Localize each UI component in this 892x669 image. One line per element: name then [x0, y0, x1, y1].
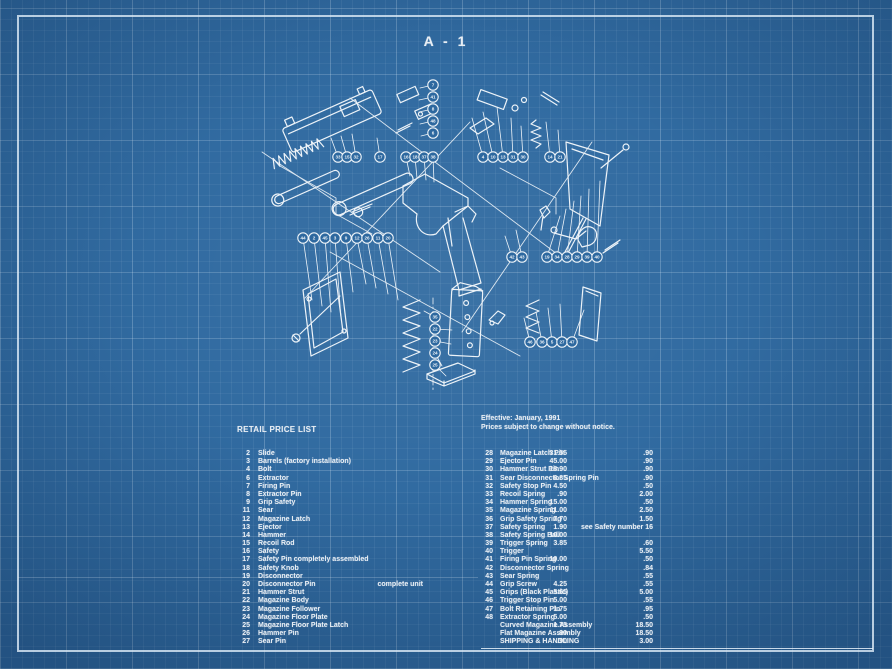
- price-row: 30Hammer Strut Pin.90: [481, 466, 653, 474]
- part-number: [481, 622, 493, 630]
- part-name: Sear Pin: [258, 638, 286, 646]
- part-number: 30: [481, 466, 493, 474]
- balloon-leader-line: [335, 238, 341, 318]
- part-number: 6: [237, 475, 250, 483]
- part-number: 32: [481, 483, 493, 491]
- frame-part: [403, 174, 481, 296]
- part-balloon-number: 17: [377, 155, 383, 160]
- blueprint-page: { "title": "A - 1", "left_list": { "head…: [0, 0, 892, 669]
- part-price: 1.50: [615, 516, 653, 524]
- price-row: 43Sear Spring.55: [481, 573, 653, 581]
- price-row: 42Disconnector Spring.84: [481, 565, 653, 573]
- part-balloon-number: 43: [519, 255, 525, 260]
- balloon-leader-line: [303, 238, 312, 300]
- part-number: 22: [237, 597, 250, 605]
- part-number: 33: [481, 491, 493, 499]
- part-balloon-number: 27: [559, 340, 565, 345]
- part-name: Sear Spring: [500, 573, 539, 581]
- price-row: 41Firing Pin Spring.50: [481, 556, 653, 564]
- part-balloon-number: 33: [335, 155, 341, 160]
- balloon-leader-line: [577, 196, 581, 257]
- part-balloon-number: 44: [300, 236, 306, 241]
- part-balloon-number: 15: [344, 155, 350, 160]
- part-balloon-number: 2: [313, 236, 316, 241]
- part-name: Magazine Latch Pin: [500, 450, 565, 458]
- part-number: 28: [481, 450, 493, 458]
- part-number: 46: [481, 597, 493, 605]
- part-balloon-number: 16: [403, 155, 409, 160]
- part-price: .90: [615, 475, 653, 483]
- part-number: 25: [237, 622, 250, 630]
- balloon-leader-line: [597, 181, 600, 257]
- part-balloon-number: 10: [490, 155, 496, 160]
- part-number: 2: [237, 450, 250, 458]
- price-row: 36Grip Safety Spring1.50: [481, 516, 653, 524]
- part-price: 2.50: [615, 507, 653, 515]
- part-balloon-number: 21: [557, 155, 563, 160]
- part-name: SHIPPING & HANDLING: [500, 638, 579, 646]
- part-balloon-number: 19: [544, 255, 550, 260]
- part-number: 23: [237, 606, 250, 614]
- part-price: 18.50: [615, 622, 653, 630]
- part-balloon-number: 42: [509, 255, 515, 260]
- part-name: Firing Pin: [258, 483, 290, 491]
- part-name: Recoil Spring: [500, 491, 545, 499]
- part-balloon-number: 11: [376, 236, 381, 241]
- part-balloon-number: 34: [554, 255, 560, 260]
- price-row: 48Extractor Spring.50: [481, 614, 653, 622]
- part-balloon-number: 30: [520, 155, 526, 160]
- part-name: Ejector: [258, 524, 282, 532]
- part-number: 24: [237, 614, 250, 622]
- price-row: 46Trigger Stop Pin.55: [481, 597, 653, 605]
- part-balloon-number: 9: [345, 236, 348, 241]
- part-balloon-number: 13: [500, 155, 506, 160]
- part-name: Magazine Latch: [258, 516, 310, 524]
- balloon-leader-line: [367, 238, 376, 288]
- part-balloon-number: 41: [430, 95, 436, 100]
- part-balloon-number: 46: [527, 340, 533, 345]
- part-number: 44: [481, 581, 493, 589]
- balloon-leader-line: [378, 238, 388, 294]
- price-list-right-column: Effective: January, 1991 Prices subject …: [481, 414, 653, 647]
- part-name: Safety Spring Ball: [500, 532, 560, 540]
- part-name: Bolt Retaining Pin: [500, 606, 560, 614]
- part-balloon-number: 35: [432, 315, 438, 320]
- magazine-latch-part: [489, 311, 505, 325]
- part-number: 18: [237, 565, 250, 573]
- price-row: SHIPPING & HANDLING3.00: [481, 638, 653, 646]
- part-price: .50: [615, 556, 653, 564]
- part-number: 4: [237, 466, 250, 474]
- part-price: .55: [615, 573, 653, 581]
- part-balloon-number: 32: [353, 155, 359, 160]
- part-name: Slide: [258, 450, 275, 458]
- part-name: Firing Pin Spring: [500, 556, 556, 564]
- part-balloon-number: 14: [547, 155, 553, 160]
- part-balloon-number: 12: [354, 236, 360, 241]
- barrel-part: [330, 170, 419, 226]
- price-row: 38Safety Spring Ball: [481, 532, 653, 540]
- part-balloon-number: 36: [539, 340, 545, 345]
- part-name: Safety Knob: [258, 565, 299, 573]
- part-name: Disconnector Pin: [258, 581, 316, 589]
- part-balloon-number: 37: [421, 155, 427, 160]
- part-balloon-number: 23: [432, 339, 438, 344]
- part-balloon-number: 20: [385, 236, 391, 241]
- balloon-leader-line: [497, 107, 503, 157]
- part-number: 13: [237, 524, 250, 532]
- part-balloon-number: 7: [432, 83, 435, 88]
- part-name: Extractor: [258, 475, 289, 483]
- balloon-leader-line: [587, 189, 589, 257]
- part-name: Bolt: [258, 466, 272, 474]
- hammer-sear-parts: [350, 204, 620, 253]
- part-price: .50: [615, 614, 653, 622]
- part-price: .55: [615, 597, 653, 605]
- part-balloon-number: 48: [430, 119, 436, 124]
- part-name: Grip Safety Spring: [500, 516, 561, 524]
- part-balloon-number: 5: [551, 340, 554, 345]
- part-number: 12: [237, 516, 250, 524]
- part-balloon-number: 45: [322, 236, 328, 241]
- price-row: 44Grip Screw.55: [481, 581, 653, 589]
- effective-date-line: Effective: January, 1991: [481, 414, 653, 423]
- part-balloon-number: 39: [584, 255, 590, 260]
- part-name: Extractor Pin: [258, 491, 302, 499]
- part-number: 36: [481, 516, 493, 524]
- price-row: 32Safety Stop Pin.50: [481, 483, 653, 491]
- part-price: .84: [615, 565, 653, 573]
- part-balloon-number: 25: [432, 363, 438, 368]
- part-number: 37: [481, 524, 493, 532]
- part-balloon-number: 47: [569, 340, 575, 345]
- price-note: see Safety number 16: [581, 524, 653, 532]
- part-number: [481, 638, 493, 646]
- price-row: 47Bolt Retaining Pin.95: [481, 606, 653, 614]
- part-number: 43: [481, 573, 493, 581]
- balloon-leader-line: [483, 112, 493, 157]
- part-number: 41: [481, 556, 493, 564]
- part-price: [615, 532, 653, 540]
- part-price: .50: [615, 483, 653, 491]
- part-name: Sear Disconnector Spring Pin: [500, 475, 599, 483]
- balloon-leader-line: [314, 238, 322, 306]
- part-balloon-number: 22: [432, 327, 438, 332]
- part-balloon-number: 28: [564, 255, 570, 260]
- part-number: 27: [237, 638, 250, 646]
- part-number: 48: [481, 614, 493, 622]
- part-price: .90: [615, 466, 653, 474]
- part-price: .55: [615, 581, 653, 589]
- part-number: 11: [237, 507, 250, 515]
- part-number: [481, 630, 493, 638]
- part-price: .90: [615, 450, 653, 458]
- magazine-spring-part: [403, 300, 420, 372]
- balloon-leader-line: [357, 238, 366, 284]
- part-number: 31: [481, 475, 493, 483]
- part-number: 17: [237, 556, 250, 564]
- part-number: 38: [481, 532, 493, 540]
- slide-part: [279, 83, 382, 153]
- part-balloon-number: 8: [432, 107, 435, 112]
- part-name: Hammer Strut Pin: [500, 466, 559, 474]
- part-number: 42: [481, 565, 493, 573]
- part-balloon-number: 31: [510, 155, 516, 160]
- part-number: 7: [237, 483, 250, 491]
- part-name: Safety Pin completely assembled: [258, 556, 369, 564]
- part-number: 35: [481, 507, 493, 515]
- part-number: 14: [237, 532, 250, 540]
- part-name: Safety Stop Pin: [500, 483, 551, 491]
- balloon-leader-line: [346, 238, 353, 292]
- part-balloon-number: 24: [432, 351, 438, 356]
- part-balloon-number: 29: [574, 255, 580, 260]
- price-row: 33Recoil Spring2.00: [481, 491, 653, 499]
- part-name: Magazine Spring: [500, 507, 556, 515]
- part-name: Sear: [258, 507, 273, 515]
- price-row: 35Magazine Spring2.50: [481, 507, 653, 515]
- price-row: Curved Magazine Assembly18.50: [481, 622, 653, 630]
- balloon-leader-line: [388, 238, 398, 300]
- part-name: Curved Magazine Assembly: [500, 622, 592, 630]
- blueprint-fold-line: [18, 577, 478, 578]
- price-change-notice: Prices subject to change without notice.: [481, 423, 653, 432]
- part-name: Magazine Floor Plate: [258, 614, 328, 622]
- price-list-right-rows: 28Magazine Latch Pin.9029Ejector Pin.903…: [481, 450, 653, 647]
- part-name: Magazine Follower: [258, 606, 320, 614]
- part-name: Extractor Spring: [500, 614, 555, 622]
- balloon-leader-line: [325, 238, 331, 312]
- recoil-rod-part: [270, 167, 342, 208]
- part-balloon-number: 18: [412, 155, 418, 160]
- part-number: 20: [237, 581, 250, 589]
- part-price: .95: [615, 606, 653, 614]
- part-balloon-number: 26: [364, 236, 370, 241]
- part-balloon-number: 4: [482, 155, 485, 160]
- part-balloon-number: 6: [432, 131, 435, 136]
- part-number: 8: [237, 491, 250, 499]
- price-row: 31Sear Disconnector Spring Pin.90: [481, 475, 653, 483]
- part-balloon-number: 40: [594, 255, 600, 260]
- part-name: Disconnector Spring: [500, 565, 569, 573]
- part-name: Grip Screw: [500, 581, 537, 589]
- part-name: Trigger Stop Pin: [500, 597, 554, 605]
- part-name: Magazine Floor Plate Latch: [258, 622, 348, 630]
- part-name: Hammer: [258, 532, 286, 540]
- part-price: 3.00: [615, 638, 653, 646]
- left-grip-panel-part: [292, 272, 348, 356]
- part-number: 47: [481, 606, 493, 614]
- part-name: Safety Spring: [500, 524, 545, 532]
- price-row: 37Safety Springsee Safety number 16: [481, 524, 653, 532]
- part-balloon-number: 38: [430, 155, 436, 160]
- price-row: 28Magazine Latch Pin.90: [481, 450, 653, 458]
- balloon-leader-line: [511, 118, 513, 157]
- part-price: 2.00: [615, 491, 653, 499]
- part-name: Magazine Body: [258, 597, 309, 605]
- balloon-leader-line: [557, 209, 566, 257]
- side-plate-part: [566, 142, 629, 226]
- shipping-underline: [481, 648, 873, 649]
- part-balloon-number: 3: [334, 236, 337, 241]
